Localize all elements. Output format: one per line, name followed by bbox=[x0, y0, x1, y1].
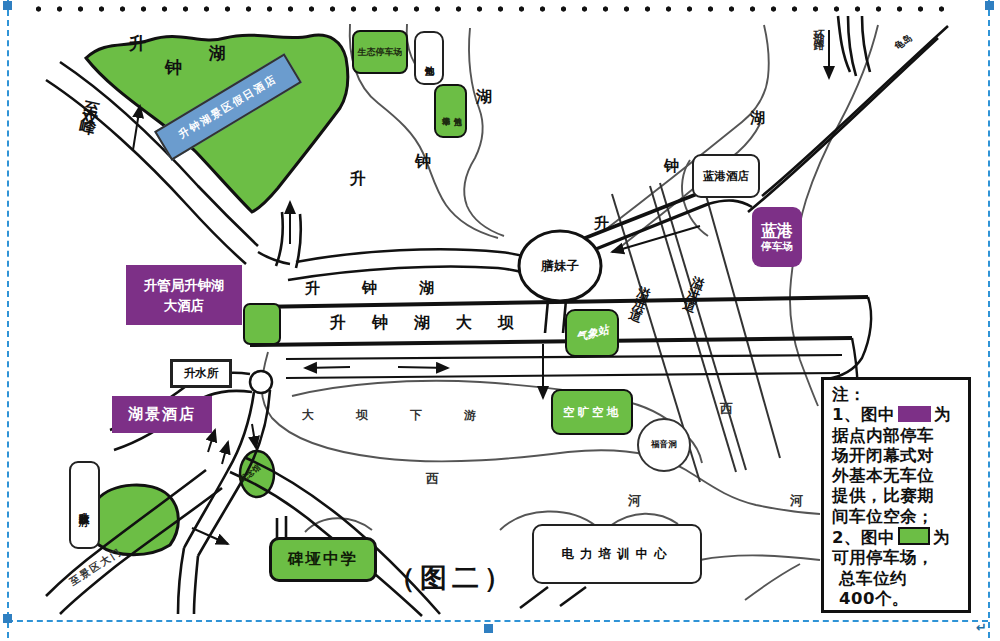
arrow-down-roundabout-road bbox=[252, 424, 256, 448]
note-item1-head: 1、图中为 bbox=[832, 405, 961, 425]
shan-mei-zi-label: 膳妹子 bbox=[522, 258, 598, 275]
paragraph-return-mark: ↵ bbox=[976, 620, 987, 635]
selection-border-bottom bbox=[7, 620, 988, 622]
lake-char: 湖 bbox=[209, 42, 226, 65]
selection-handle-bottom-center[interactable] bbox=[484, 624, 493, 633]
lake-char: 升 bbox=[594, 214, 609, 233]
west-river-char: 河 bbox=[790, 492, 803, 510]
blue-harbor-parking-type: 停车场 bbox=[761, 240, 793, 252]
downstream-label: 大坝下游 bbox=[302, 407, 518, 424]
mgmt-hotel-box: 升管局升钟湖 大酒店 bbox=[126, 265, 242, 325]
eco-parking-label: 生态停车场 bbox=[358, 46, 403, 59]
lake-char: 湖 bbox=[750, 109, 765, 128]
lake-row-label: 升钟湖 bbox=[305, 279, 476, 298]
dam-label: 升钟湖大坝 bbox=[330, 313, 540, 334]
lake-char: 钟 bbox=[165, 56, 182, 79]
note-item2-line: 可用停车场， bbox=[832, 548, 961, 568]
roundabout bbox=[250, 371, 272, 393]
selection-handle-bottom-left[interactable] bbox=[3, 614, 12, 623]
mgmt-hotel-label-1: 升管局升钟湖 bbox=[144, 275, 225, 295]
purple-parking-swatch bbox=[898, 406, 931, 422]
power-training-box: 电力培训中心 bbox=[532, 524, 702, 584]
green-parking-swatch bbox=[898, 527, 930, 545]
lake-char: 湖 bbox=[476, 87, 492, 108]
west-river-char: 河 bbox=[628, 492, 641, 510]
blue-harbor-hotel-label: 蓝港酒店 bbox=[703, 169, 749, 184]
note-item1-line: 外基本无车位 bbox=[832, 466, 961, 486]
note-heading: 注： bbox=[832, 385, 961, 405]
note-box: 注： 1、图中为 据点内部停车 场开闭幕式对 外基本无车位 提供，比赛期 间车位… bbox=[821, 377, 971, 613]
sheng-shui-office-box: 升水所 bbox=[170, 359, 232, 388]
note-item1-line: 场开闭幕式对 bbox=[832, 446, 961, 466]
selection-handle-top-left[interactable] bbox=[3, 1, 12, 10]
map-figure: 升钟湖景区假日酒店 生态停车场 钓鱼池 停车场 钓鱼池 蓝港酒店 蓝港 停车场 … bbox=[0, 0, 1000, 641]
mgmt-hotel-label-2: 大酒店 bbox=[164, 295, 205, 315]
eco-parking-box: 生态停车场 bbox=[352, 30, 408, 74]
selection-handle-top-right[interactable] bbox=[985, 1, 994, 10]
ring-road-label: 环湖路 bbox=[810, 20, 825, 35]
note-item2-head: 2、图中为 bbox=[832, 527, 961, 548]
fishing-pond-box: 钓鱼池 bbox=[414, 31, 444, 85]
power-training-label: 电力培训中心 bbox=[562, 546, 673, 563]
weather-station-label: 气象站 bbox=[574, 322, 610, 345]
blue-harbor-parking-box: 蓝港 停车场 bbox=[752, 207, 802, 267]
arrow-up-south-road-2 bbox=[222, 442, 228, 464]
weather-station-box: 气象站 bbox=[565, 309, 619, 357]
blue-harbor-parking-name: 蓝港 bbox=[761, 222, 793, 240]
open-space-label: 空旷空地 bbox=[563, 405, 621, 420]
selection-border-right bbox=[988, 0, 990, 638]
fuyin-cave-label: 福音洞 bbox=[640, 439, 688, 451]
west-river-char: 西 bbox=[720, 400, 733, 418]
lake-view-hotel-box: 湖景酒店 bbox=[112, 396, 212, 433]
lake-char: 升 bbox=[129, 32, 146, 55]
arrow-east-lower-road bbox=[398, 367, 448, 368]
lake-char: 钟 bbox=[664, 157, 679, 176]
note-item1-line: 提供，比赛期 bbox=[832, 486, 961, 506]
lake-view-hotel-label: 湖景酒店 bbox=[128, 405, 196, 424]
west-river-char: 西 bbox=[426, 470, 439, 488]
arrow-southeast-school-road bbox=[192, 528, 228, 544]
unnamed-parking-box bbox=[243, 303, 281, 345]
lake-char: 钟 bbox=[415, 152, 431, 173]
note-item2-line: 400个。 bbox=[832, 589, 961, 609]
lake-char: 升 bbox=[350, 169, 366, 190]
green-area-town bbox=[90, 485, 178, 555]
town-government-label: 升水镇政府 bbox=[78, 503, 92, 508]
town-government-box: 升水镇政府 bbox=[69, 461, 100, 549]
selection-border-left bbox=[7, 0, 9, 638]
selection-border-top bbox=[28, 4, 958, 14]
note-item2-line: 总车位约 bbox=[832, 569, 961, 589]
arrow-west-lower-road bbox=[305, 367, 350, 368]
sheng-shui-office-label: 升水所 bbox=[184, 366, 219, 381]
beiya-school-label: 碑垭中学 bbox=[288, 549, 358, 570]
fishpond-parking-box: 停车场 钓鱼池 bbox=[434, 84, 467, 138]
note-item1-line: 据点内部停车 bbox=[832, 426, 961, 446]
open-space-box: 空旷空地 bbox=[551, 389, 633, 435]
blue-harbor-hotel-box: 蓝港酒店 bbox=[692, 154, 760, 198]
beiya-school-box: 碑垭中学 bbox=[269, 537, 377, 582]
arrow-up-shuangfeng-road bbox=[133, 106, 140, 150]
note-item1-line: 间车位空余； bbox=[832, 507, 961, 527]
figure-caption: （图二） bbox=[388, 560, 516, 596]
arrow-up-south-road-1 bbox=[208, 430, 215, 452]
